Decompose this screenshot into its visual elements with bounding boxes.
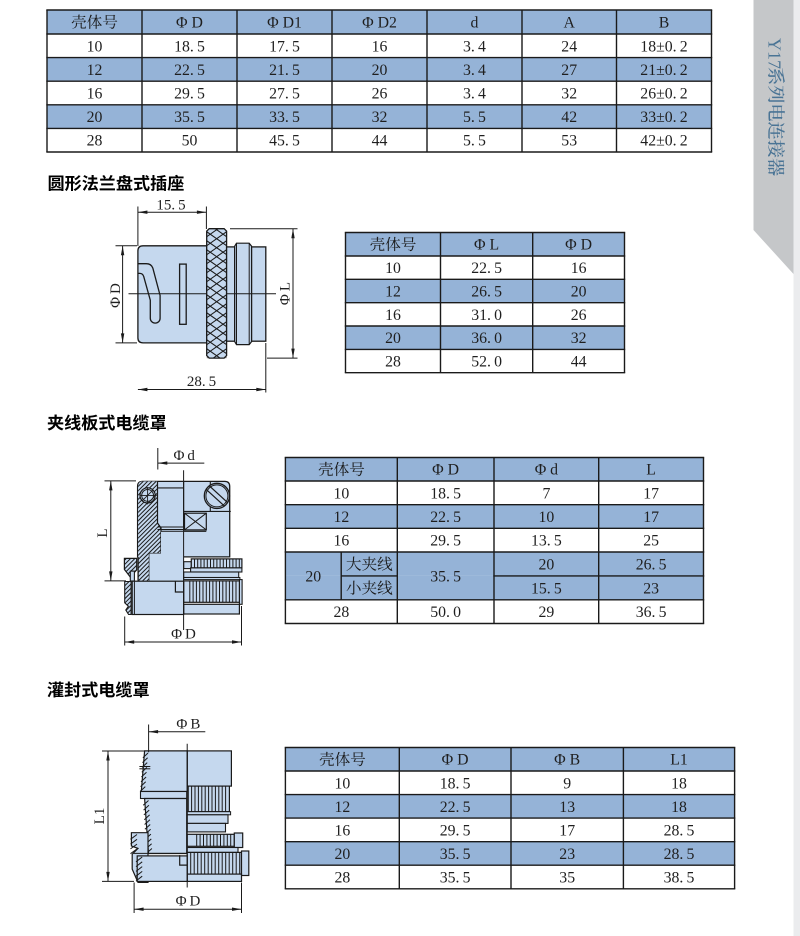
svg-text:29. 5: 29. 5 [440, 822, 471, 839]
svg-text:5. 5: 5. 5 [463, 133, 486, 150]
svg-text:18. 5: 18. 5 [440, 775, 471, 792]
svg-text:22. 5: 22. 5 [430, 509, 461, 526]
svg-text:21. 5: 21. 5 [269, 62, 300, 79]
svg-text:d: d [471, 15, 479, 32]
svg-text:29: 29 [539, 604, 555, 621]
svg-text:7: 7 [542, 485, 550, 502]
svg-text:20: 20 [87, 109, 103, 126]
svg-text:31. 0: 31. 0 [471, 307, 502, 324]
svg-text:10: 10 [385, 260, 401, 277]
svg-text:22. 5: 22. 5 [440, 799, 471, 816]
svg-text:Φ D: Φ D [108, 283, 124, 308]
svg-text:13. 5: 13. 5 [531, 533, 562, 550]
svg-text:25: 25 [643, 533, 659, 550]
svg-text:22. 5: 22. 5 [174, 62, 205, 79]
svg-text:12: 12 [335, 799, 351, 816]
svg-text:28. 5: 28. 5 [664, 822, 695, 839]
svg-text:16: 16 [335, 822, 351, 839]
svg-text:32: 32 [571, 330, 587, 347]
svg-text:28: 28 [335, 870, 351, 887]
svg-text:Φ B: Φ B [554, 752, 580, 769]
svg-text:23: 23 [643, 580, 659, 597]
svg-text:10: 10 [539, 509, 555, 526]
svg-text:18. 5: 18. 5 [430, 485, 461, 502]
svg-text:16: 16 [385, 307, 401, 324]
svg-text:Φ D: Φ D [176, 15, 203, 32]
svg-text:44: 44 [571, 354, 587, 371]
svg-text:Φ B: Φ B [176, 717, 200, 733]
svg-text:18. 5: 18. 5 [174, 38, 205, 55]
svg-text:15. 5: 15. 5 [156, 197, 185, 213]
svg-text:16: 16 [87, 86, 103, 103]
svg-text:17. 5: 17. 5 [269, 38, 300, 55]
svg-text:38. 5: 38. 5 [664, 870, 695, 887]
svg-text:35. 5: 35. 5 [440, 846, 471, 863]
svg-text:20: 20 [571, 284, 587, 301]
svg-text:15. 5: 15. 5 [531, 580, 562, 597]
svg-text:28. 5: 28. 5 [664, 846, 695, 863]
svg-text:45. 5: 45. 5 [269, 133, 300, 150]
svg-text:Φ D2: Φ D2 [362, 15, 397, 32]
svg-text:L: L [646, 462, 656, 479]
svg-text:22. 5: 22. 5 [471, 260, 502, 277]
svg-text:50: 50 [182, 133, 198, 150]
svg-text:12: 12 [87, 62, 103, 79]
svg-text:24: 24 [561, 38, 577, 55]
svg-text:Φ d: Φ d [173, 448, 195, 464]
svg-text:36. 0: 36. 0 [471, 330, 502, 347]
svg-text:33±0. 2: 33±0. 2 [640, 109, 687, 126]
svg-text:28: 28 [334, 604, 350, 621]
svg-text:20: 20 [372, 62, 388, 79]
svg-text:26. 5: 26. 5 [471, 284, 502, 301]
svg-text:27: 27 [561, 62, 577, 79]
svg-text:32: 32 [561, 86, 577, 103]
svg-text:16: 16 [372, 38, 388, 55]
svg-text:26. 5: 26. 5 [636, 556, 667, 573]
svg-text:9: 9 [563, 775, 571, 792]
svg-text:Φ d: Φ d [535, 462, 558, 479]
svg-text:A: A [563, 15, 575, 32]
svg-text:12: 12 [385, 284, 401, 301]
svg-text:35. 5: 35. 5 [174, 109, 205, 126]
svg-text:20: 20 [385, 330, 401, 347]
svg-text:35: 35 [559, 870, 575, 887]
svg-text:53: 53 [561, 133, 577, 150]
svg-text:17: 17 [643, 509, 659, 526]
svg-text:42: 42 [561, 109, 577, 126]
svg-text:16: 16 [571, 260, 587, 277]
svg-text:12: 12 [334, 509, 350, 526]
svg-text:20: 20 [305, 568, 321, 585]
svg-text:35. 5: 35. 5 [430, 568, 461, 585]
svg-text:Y17: Y17 [765, 38, 785, 69]
svg-text:Φ D: Φ D [432, 462, 459, 479]
svg-text:B: B [659, 15, 670, 32]
svg-text:29. 5: 29. 5 [430, 533, 461, 550]
svg-text:18: 18 [671, 799, 687, 816]
svg-text:Φ L: Φ L [277, 282, 293, 305]
svg-text:3. 4: 3. 4 [463, 86, 486, 103]
svg-text:Φ D: Φ D [171, 627, 196, 643]
svg-text:L1: L1 [92, 808, 108, 825]
svg-text:33. 5: 33. 5 [269, 109, 300, 126]
svg-text:13: 13 [559, 799, 575, 816]
svg-text:3. 4: 3. 4 [463, 38, 486, 55]
svg-text:18±0. 2: 18±0. 2 [640, 38, 687, 55]
svg-text:20: 20 [335, 846, 351, 863]
svg-text:Φ D1: Φ D1 [267, 15, 302, 32]
svg-text:44: 44 [372, 133, 388, 150]
svg-text:L: L [95, 528, 111, 537]
svg-text:28. 5: 28. 5 [187, 374, 216, 390]
svg-text:21±0. 2: 21±0. 2 [640, 62, 687, 79]
svg-text:23: 23 [559, 846, 575, 863]
svg-text:5. 5: 5. 5 [463, 109, 486, 126]
svg-text:18: 18 [671, 775, 687, 792]
svg-text:10: 10 [87, 38, 103, 55]
svg-text:36. 5: 36. 5 [636, 604, 667, 621]
svg-text:42±0. 2: 42±0. 2 [640, 133, 687, 150]
svg-text:Φ D: Φ D [565, 237, 592, 254]
svg-text:26±0. 2: 26±0. 2 [640, 86, 687, 103]
svg-text:L1: L1 [670, 752, 688, 769]
svg-text:50. 0: 50. 0 [430, 604, 461, 621]
svg-text:28: 28 [385, 354, 401, 371]
svg-text:28: 28 [87, 133, 103, 150]
svg-text:Φ D: Φ D [442, 752, 469, 769]
svg-text:10: 10 [334, 485, 350, 502]
svg-text:26: 26 [571, 307, 587, 324]
svg-text:35. 5: 35. 5 [440, 870, 471, 887]
svg-text:3. 4: 3. 4 [463, 62, 486, 79]
svg-text:27. 5: 27. 5 [269, 86, 300, 103]
svg-text:17: 17 [643, 485, 659, 502]
svg-text:Φ D: Φ D [176, 894, 201, 910]
svg-text:20: 20 [539, 556, 555, 573]
svg-text:26: 26 [372, 86, 388, 103]
svg-text:Φ L: Φ L [474, 237, 499, 254]
svg-text:52. 0: 52. 0 [471, 354, 502, 371]
svg-text:32: 32 [372, 109, 388, 126]
svg-text:29. 5: 29. 5 [174, 86, 205, 103]
svg-text:16: 16 [334, 533, 350, 550]
svg-text:17: 17 [559, 822, 575, 839]
svg-text:10: 10 [335, 775, 351, 792]
